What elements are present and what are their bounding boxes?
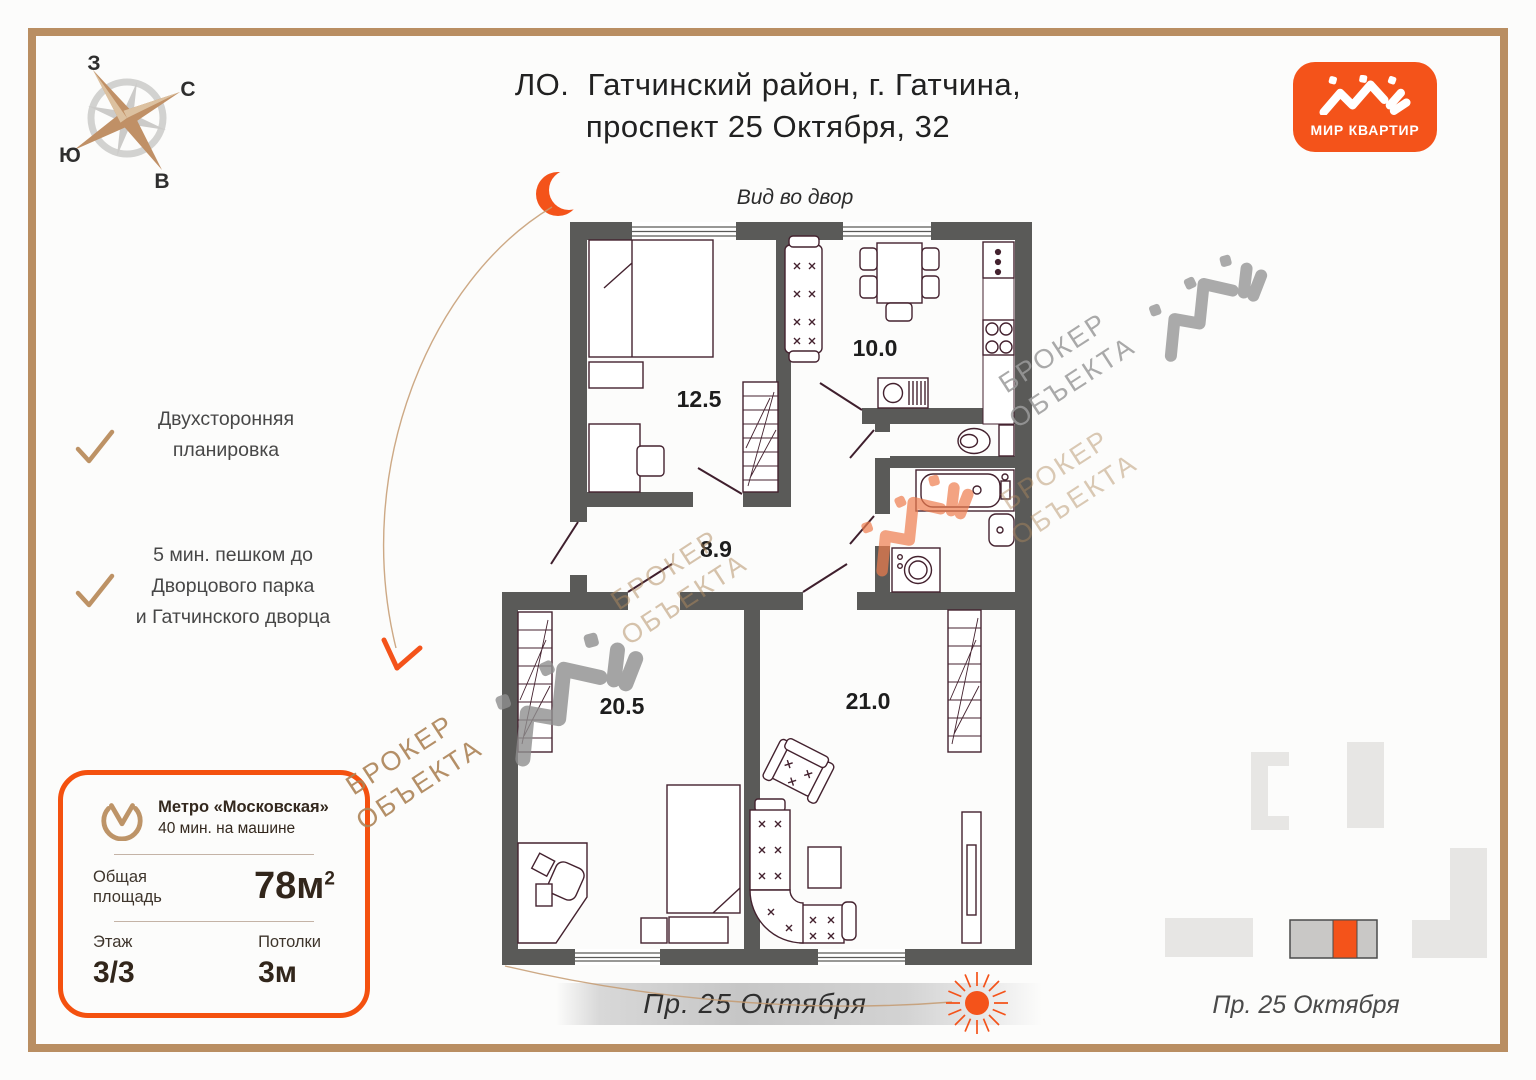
room-label-kitchen: 10.0 [853,335,898,361]
arrow-icon [384,640,420,668]
bed [589,240,713,357]
compass-east-label: В [154,170,169,193]
compass-south-label: Ю [59,144,81,167]
room-label-hallway: 8.9 [700,536,732,562]
building-shape [1412,848,1487,958]
compass-icon: З С Ю В [59,52,195,193]
wardrobe [948,610,981,752]
stove [983,320,1014,355]
furniture [518,236,1014,943]
kitchen-door [820,383,862,410]
subject-building [1290,920,1377,958]
coffee-table [808,847,841,888]
bedroom-door [698,468,742,494]
building-shape [1347,742,1384,828]
room-label-bedroom: 12.5 [677,386,722,412]
bed [641,785,740,943]
armchair [762,735,837,805]
room-label-living-room: 21.0 [846,688,891,714]
courtyard-arc [384,207,552,648]
floor-plan: З С Ю В [0,0,1536,1080]
courtyard-view-label: Вид во двор [737,186,854,209]
room-label-room-left: 20.5 [600,693,645,719]
kitchen-sink [878,378,928,408]
compass-west-label: З [87,52,100,75]
wardrobe [743,382,778,492]
building-shape [1165,918,1253,957]
street-curve [505,966,952,1006]
dining-table [860,243,939,321]
desk-with-chair [518,843,587,943]
toilet [958,425,1014,456]
kitchen-sofa [785,236,822,362]
entrance-door [551,522,578,564]
brand-watermark-icon [1139,242,1269,356]
compass-north-label: С [180,78,195,101]
flyer-page: ЛО. Гатчинский район, г. Гатчина, проспе… [0,0,1536,1080]
room-left-door [628,564,672,592]
location-minimap: Пр. 25 Октября [1165,742,1487,1019]
desk-with-chair [589,424,664,492]
washbasin [989,514,1014,546]
building-shape [1251,752,1289,830]
washing-machine [892,548,940,592]
sun-icon [946,972,1008,1034]
tv-console [962,812,981,943]
dresser [589,362,643,388]
minimap-street-label: Пр. 25 Октября [1212,991,1399,1019]
wc-door [850,430,874,458]
living-room-door [803,564,847,592]
